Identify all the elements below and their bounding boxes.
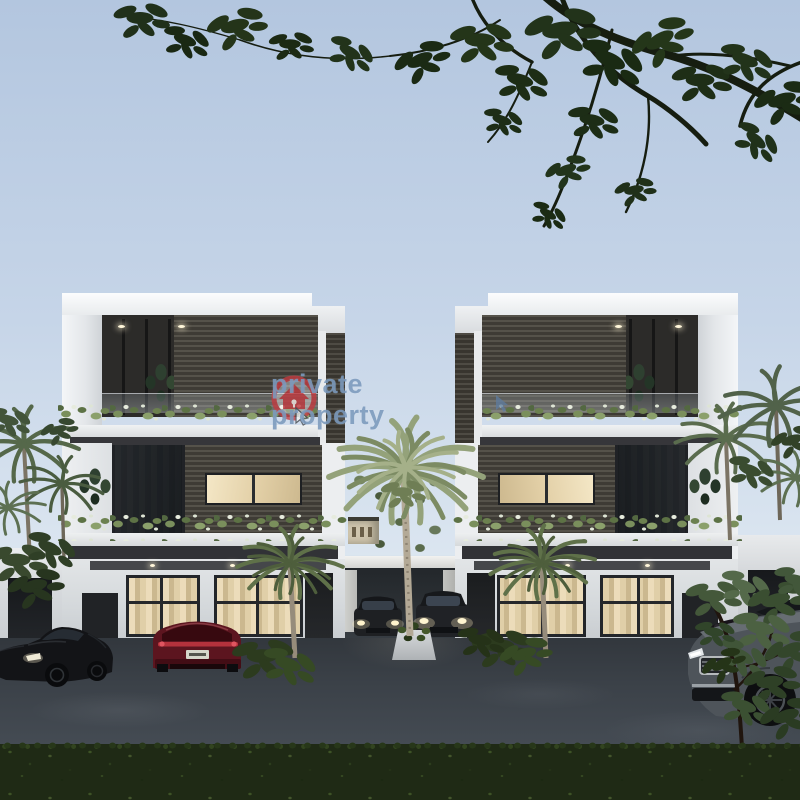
watermark-cursor-icon (494, 394, 514, 414)
corner-tree-right (684, 560, 800, 748)
watermark: private property (266, 372, 322, 428)
center-tall-palm (329, 411, 483, 636)
foreground-hedge (0, 744, 800, 800)
branch-leaves (112, 0, 800, 237)
left-palm-cluster (0, 401, 107, 615)
architectural-render: private property (0, 0, 800, 800)
right-palm-cluster (675, 361, 800, 540)
watermark-text: private property (271, 369, 385, 431)
front-hedges (230, 621, 557, 695)
vegetation-layer (0, 0, 800, 800)
left-house-front-palm (237, 526, 343, 658)
